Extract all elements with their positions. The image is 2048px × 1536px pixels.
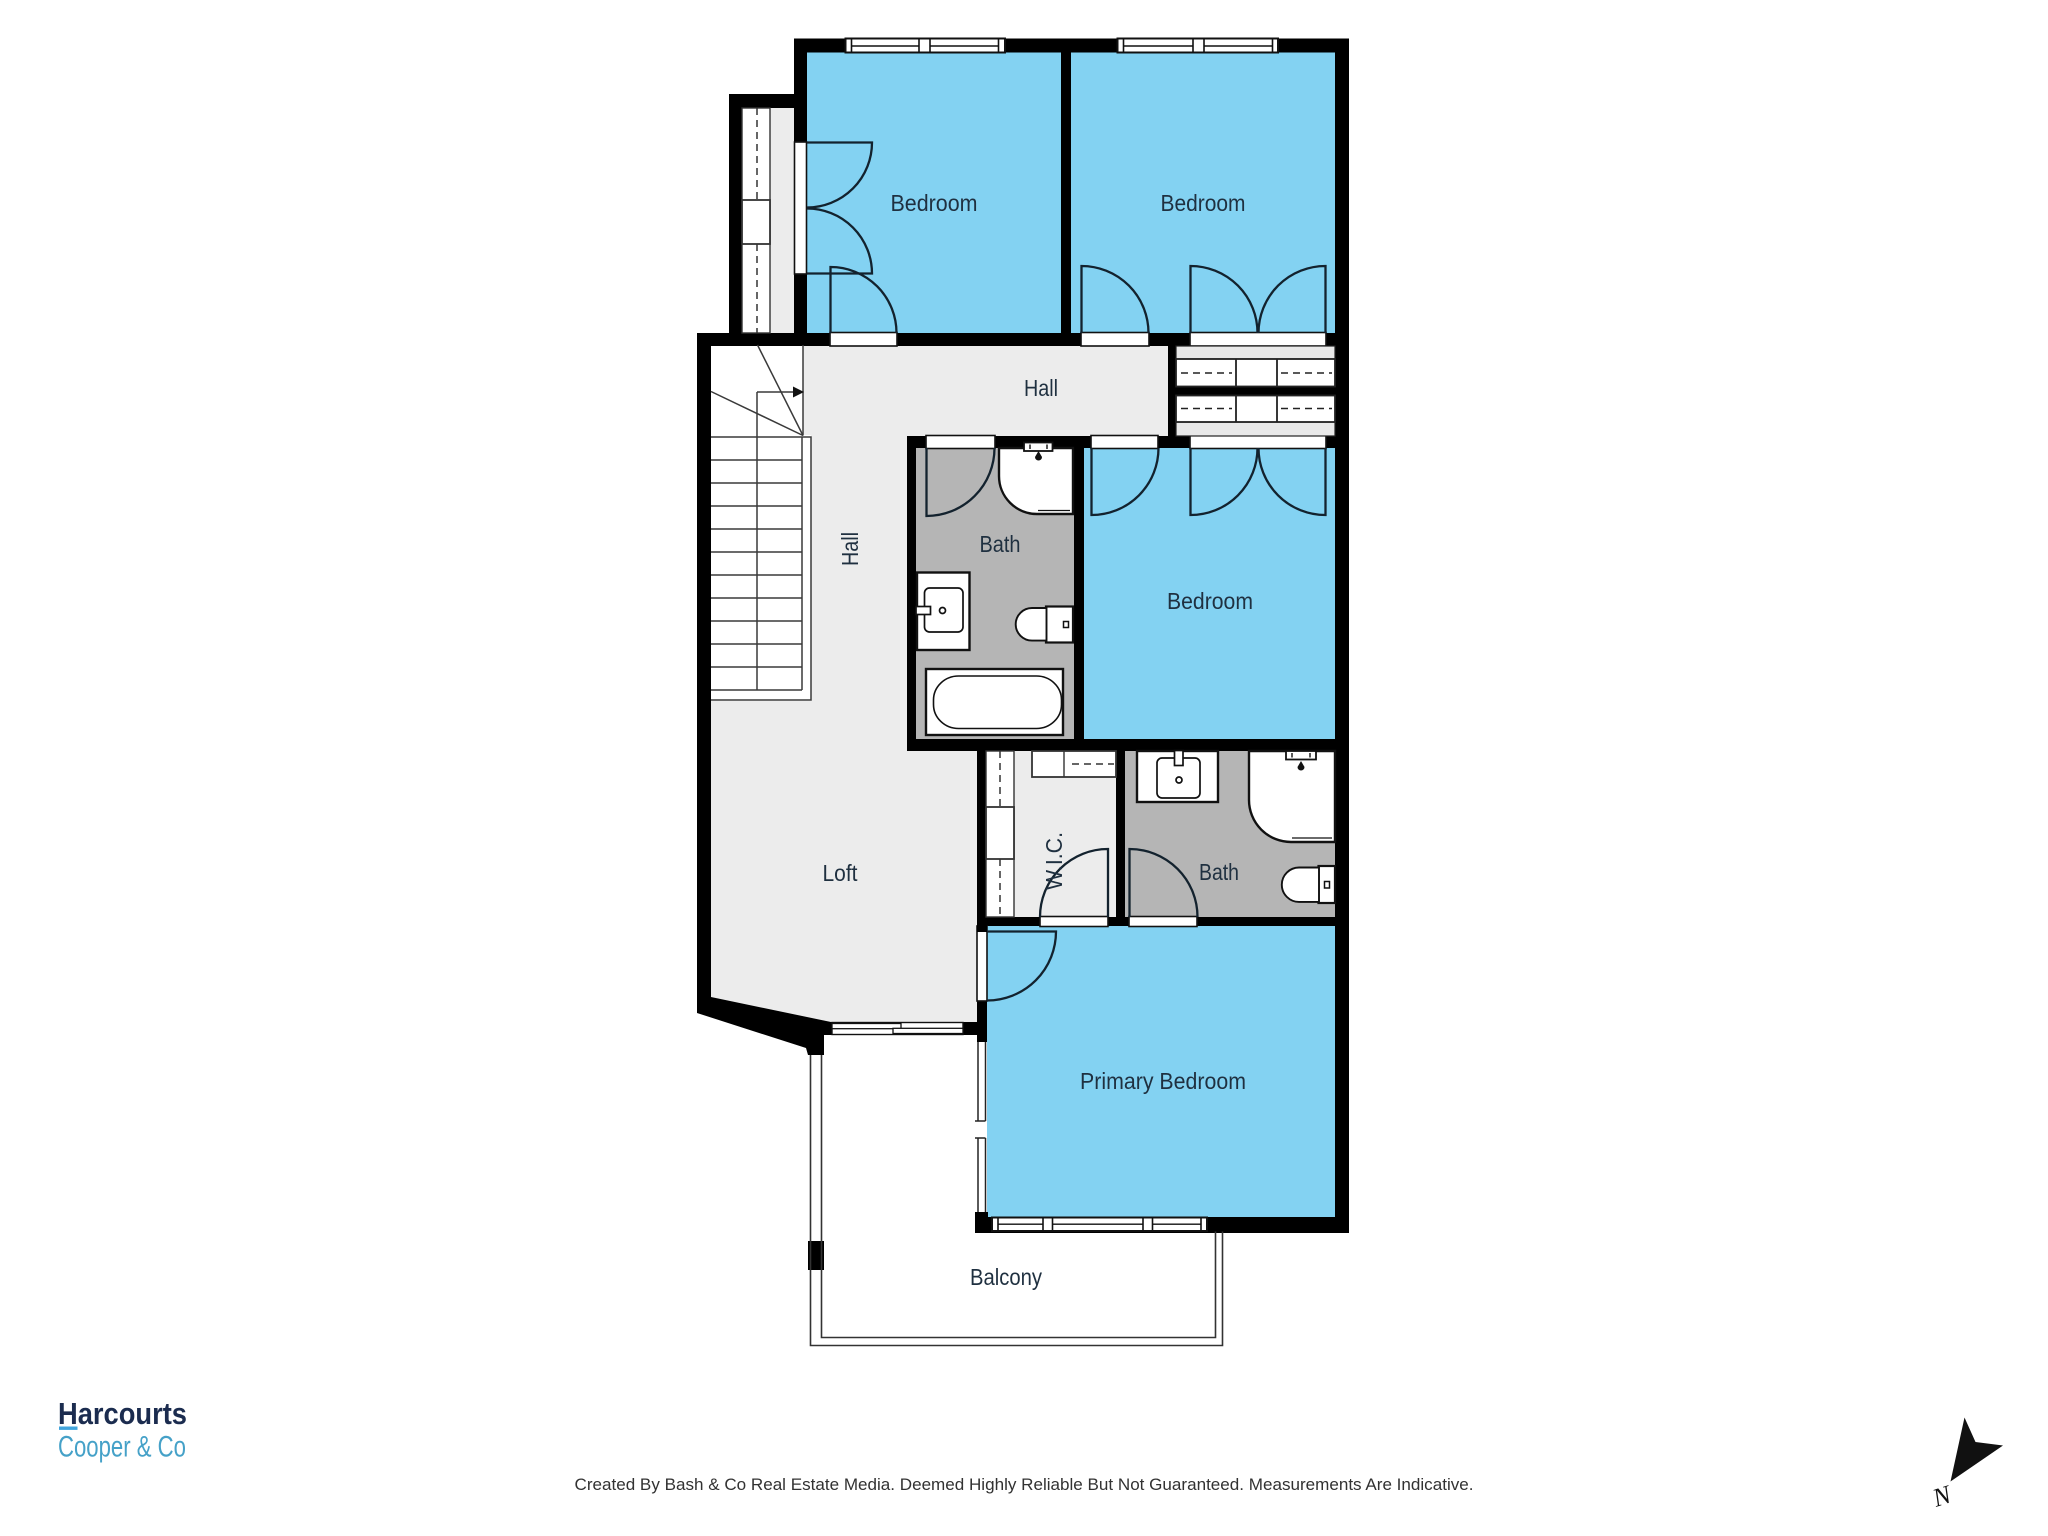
svg-text:Bedroom: Bedroom: [1161, 190, 1246, 216]
svg-text:Bath: Bath: [1199, 859, 1239, 885]
svg-text:Loft: Loft: [823, 860, 858, 886]
svg-text:Created By Bash & Co Real Esta: Created By Bash & Co Real Estate Media. …: [575, 1475, 1474, 1494]
svg-text:Bath: Bath: [980, 531, 1021, 557]
svg-text:Harcourts: Harcourts: [58, 1396, 187, 1431]
svg-text:Balcony: Balcony: [970, 1264, 1042, 1290]
svg-text:W.I.C.: W.I.C.: [1041, 832, 1067, 890]
svg-text:Bedroom: Bedroom: [1167, 588, 1253, 614]
svg-text:Primary Bedroom: Primary Bedroom: [1080, 1068, 1246, 1094]
svg-text:Hall: Hall: [837, 532, 863, 566]
svg-text:Cooper & Co: Cooper & Co: [58, 1431, 186, 1464]
svg-text:Bedroom: Bedroom: [891, 190, 978, 216]
svg-text:Hall: Hall: [1024, 375, 1058, 401]
svg-text:N: N: [1928, 1479, 1956, 1513]
